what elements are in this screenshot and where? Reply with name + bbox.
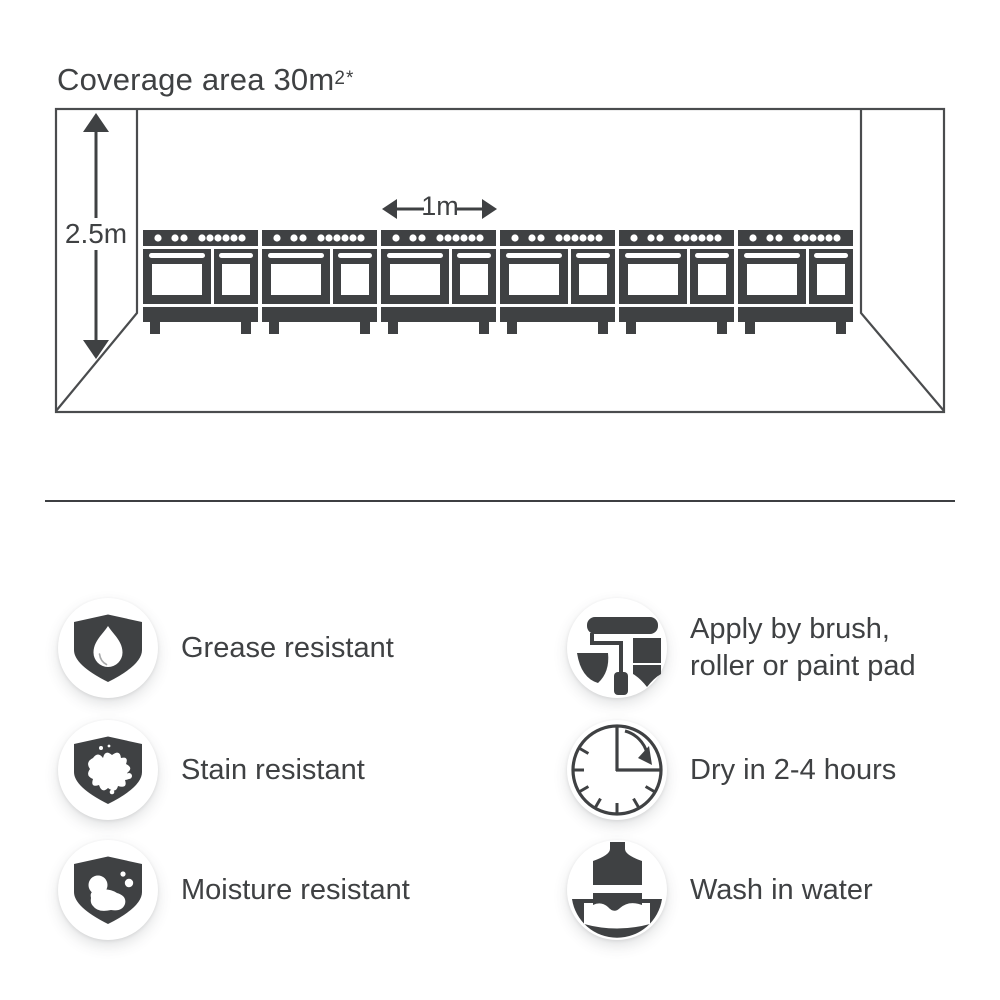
clock-icon — [567, 720, 667, 820]
room-right-wall — [861, 109, 944, 411]
stove-unit — [500, 230, 615, 334]
feature-label: Grease resistant — [181, 630, 394, 667]
paint-roller-icon — [567, 598, 667, 698]
stove-row — [143, 230, 853, 334]
feature-label: Moisture resistant — [181, 872, 410, 909]
feature-grease-resistant: Grease resistant — [58, 598, 394, 698]
wash-brush-icon — [567, 840, 667, 940]
width-dimension-arrow: 1m — [382, 191, 497, 221]
stove-unit — [262, 230, 377, 334]
feature-dry-time: Dry in 2-4 hours — [567, 720, 896, 820]
feature-label: Stain resistant — [181, 752, 365, 789]
feature-stain-resistant: Stain resistant — [58, 720, 365, 820]
stove-unit — [738, 230, 853, 334]
shield-splat-icon — [58, 720, 158, 820]
feature-label-line: Apply by brush, — [690, 611, 916, 648]
shield-bubbles-icon — [58, 840, 158, 940]
feature-label-line: roller or paint pad — [690, 648, 916, 685]
stove-unit — [143, 230, 258, 334]
stove-unit — [381, 230, 496, 334]
feature-apply-methods: Apply by brush, roller or paint pad — [567, 598, 916, 698]
stove-unit — [619, 230, 734, 334]
feature-label: Dry in 2-4 hours — [690, 752, 896, 789]
coverage-room-diagram: 2.5m 1m — [0, 0, 1000, 460]
section-divider — [45, 500, 955, 502]
feature-label: Apply by brush, roller or paint pad — [690, 611, 916, 685]
width-dimension-label: 1m — [421, 191, 459, 221]
feature-moisture-resistant: Moisture resistant — [58, 840, 410, 940]
height-dimension-arrow: 2.5m — [65, 113, 127, 359]
feature-wash-in-water: Wash in water — [567, 840, 873, 940]
height-dimension-label: 2.5m — [65, 218, 127, 249]
shield-droplet-icon — [58, 598, 158, 698]
feature-label: Wash in water — [690, 872, 873, 909]
